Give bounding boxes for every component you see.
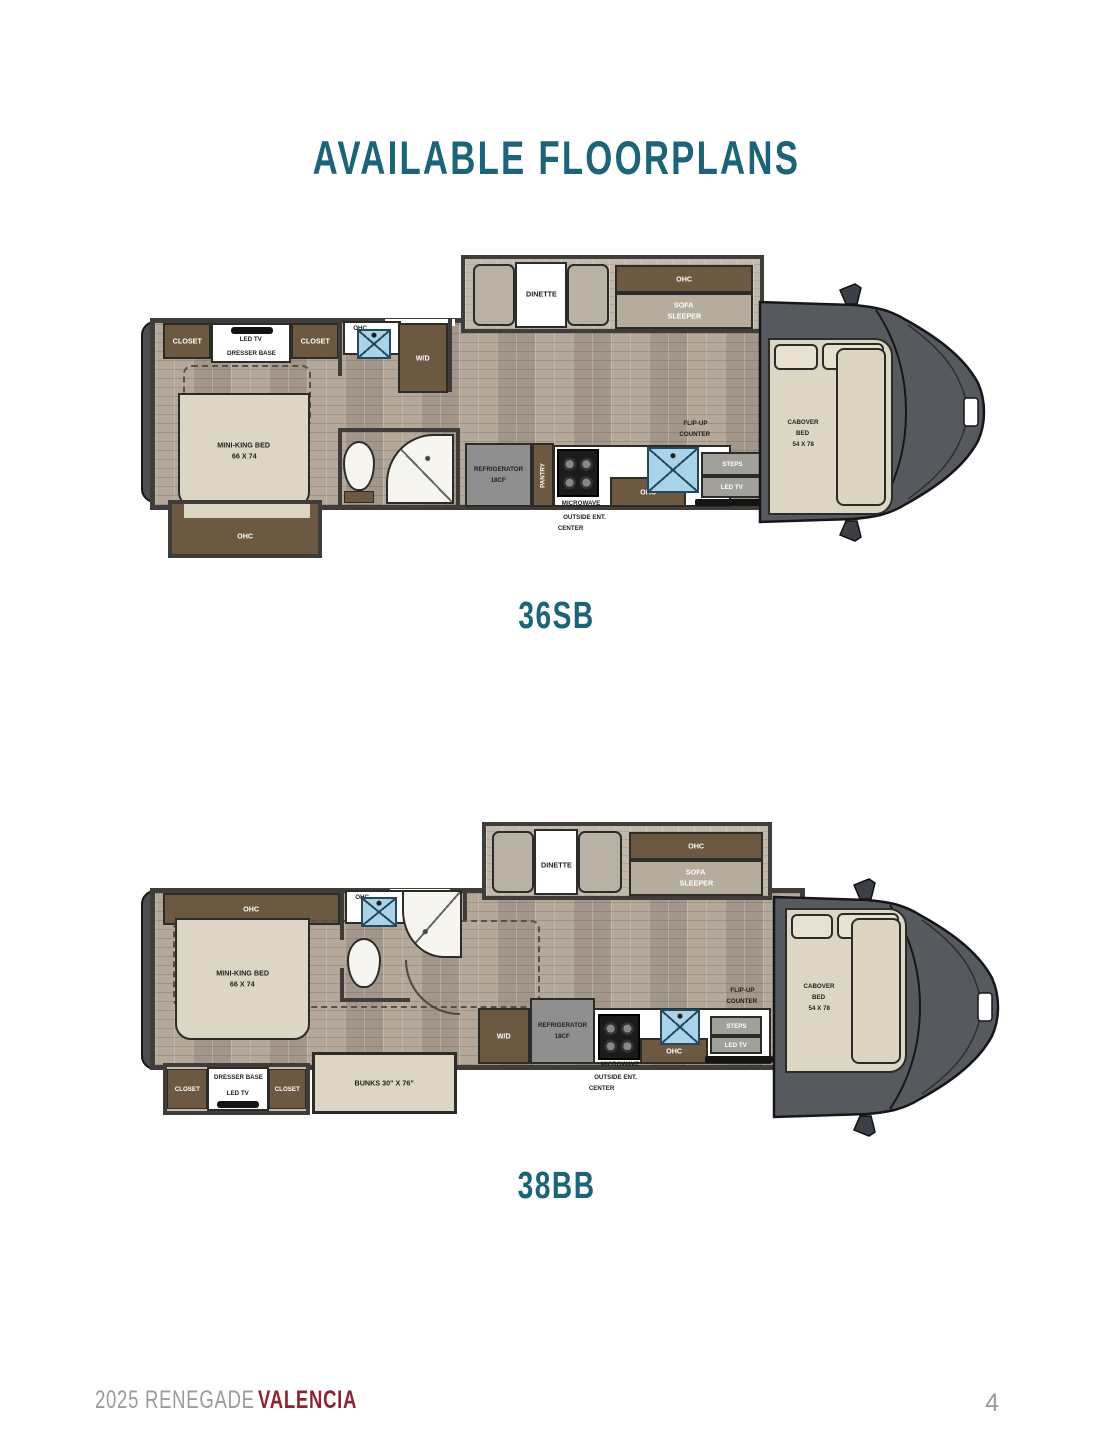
kitchen-sink-icon — [647, 447, 699, 493]
slide-out-dinette: DINETTE OHC SOFASLEEPER — [461, 255, 764, 333]
dresser-tv-unit: DRESSER BASE LED TV — [207, 1067, 269, 1111]
wall — [338, 428, 460, 432]
slide-out-bed-ohc: OHC — [168, 500, 322, 558]
closet-right: CLOSET — [291, 323, 339, 359]
wall — [448, 318, 452, 392]
wall — [340, 968, 344, 1002]
blanket — [836, 348, 886, 506]
wall — [456, 428, 460, 506]
blanket — [851, 918, 901, 1064]
wall — [463, 888, 467, 920]
dinette-label: DINETTE — [491, 287, 591, 301]
closet-right: CLOSET — [269, 1069, 306, 1109]
brochure-page: AVAILABLE FLOORPLANS DINETTE OHC SOFASLE… — [0, 0, 1113, 1440]
dresser-base-label: DRESSER BASE — [209, 1071, 267, 1083]
sofa-ohc-cabinet: OHC — [629, 832, 763, 860]
outside-ent-label: OUTSIDE ENT.CENTER — [550, 510, 640, 536]
page-title: AVAILABLE FLOORPLANS — [313, 130, 801, 185]
page-title-row: AVAILABLE FLOORPLANS — [0, 128, 1113, 186]
flip-up-counter-label: FLIP-UPCOUNTER — [650, 416, 740, 442]
toilet-icon — [347, 938, 381, 988]
mini-king-bed: MINI-KING BED66 X 74 — [178, 393, 310, 508]
sink-icon — [361, 897, 397, 927]
wall — [340, 998, 410, 1002]
footer-series: 2025 RENEGADE — [95, 1386, 255, 1414]
entry-led-tv: LED TV — [701, 476, 763, 498]
dinette-label: DINETTE — [506, 858, 606, 872]
wall — [338, 428, 342, 506]
entry-steps: STEPS — [710, 1016, 762, 1036]
cabover-bed-label: CABOVERBED54 X 78 — [770, 408, 836, 458]
stove-icon — [598, 1014, 640, 1060]
led-tv-label: LED TV — [209, 1087, 267, 1099]
slide-out-dinette: DINETTE OHC SOFASLEEPER — [482, 822, 772, 900]
dresser-base-label: DRESSER BASE — [213, 347, 289, 359]
fp1-name-row: 36SB — [0, 592, 1113, 640]
bed-foot — [184, 504, 310, 518]
stove-icon — [557, 449, 599, 497]
refrigerator: REFRIGERATOR18CF — [465, 443, 532, 507]
sofa-sleeper: SOFASLEEPER — [615, 293, 753, 329]
washer-dryer: W/D — [478, 1008, 530, 1064]
kitchen-sink-icon — [660, 1009, 700, 1045]
bunks: BUNKS 30" X 76" — [312, 1052, 457, 1114]
entry-steps: STEPS — [701, 452, 763, 476]
toilet-icon — [343, 441, 375, 491]
sofa-ohc-cabinet: OHC — [615, 265, 753, 293]
floorplan-name-38bb: 38BB — [518, 1165, 596, 1208]
slide-out-dresser: CLOSET DRESSER BASE LED TV CLOSET — [163, 1063, 310, 1115]
refrigerator: REFRIGERATOR18CF — [530, 998, 595, 1064]
fp2-name-row: 38BB — [0, 1162, 1113, 1210]
floorplan-36sb: DINETTE OHC SOFASLEEPER CLOSET LED TV DR… — [145, 253, 1005, 565]
microwave-label: MICROWAVE — [551, 497, 611, 509]
dresser-tv-unit: LED TV DRESSER BASE — [211, 323, 291, 363]
toilet-tank — [344, 491, 374, 503]
washer-dryer: W/D — [398, 323, 448, 393]
entry-step-bar — [705, 1056, 773, 1063]
floorplan-name-36sb: 36SB — [518, 595, 594, 638]
closet-left: CLOSET — [167, 1069, 207, 1109]
wall — [338, 318, 342, 376]
cabover-bed: CABOVERBED54 X 78 — [768, 338, 893, 515]
cabover-bed: CABOVERBED54 X 78 — [785, 908, 907, 1073]
sofa-sleeper: SOFASLEEPER — [629, 860, 763, 896]
wall — [340, 888, 344, 940]
led-tv-label: LED TV — [213, 333, 289, 345]
pillow — [791, 914, 833, 939]
pillow — [774, 344, 818, 370]
cabover-bed-label: CABOVERBED54 X 78 — [787, 972, 851, 1022]
outside-ent-label: OUTSIDE ENT.CENTER — [581, 1070, 671, 1096]
tv-icon — [217, 1101, 259, 1108]
sink-icon — [357, 329, 391, 359]
entry-led-tv: LED TV — [710, 1036, 762, 1054]
closet-left: CLOSET — [163, 323, 211, 359]
page-number: 4 — [950, 1388, 1000, 1418]
footer-left: 2025 RENEGADE VALENCIA — [95, 1386, 695, 1420]
ohc-label: OHC — [172, 526, 318, 546]
mini-king-bed: MINI-KING BED66 X 74 — [175, 918, 310, 1040]
footer-model: VALENCIA — [258, 1386, 357, 1414]
floorplan-38bb: DINETTE OHC SOFASLEEPER OHC MINI-KING BE… — [145, 818, 1015, 1148]
